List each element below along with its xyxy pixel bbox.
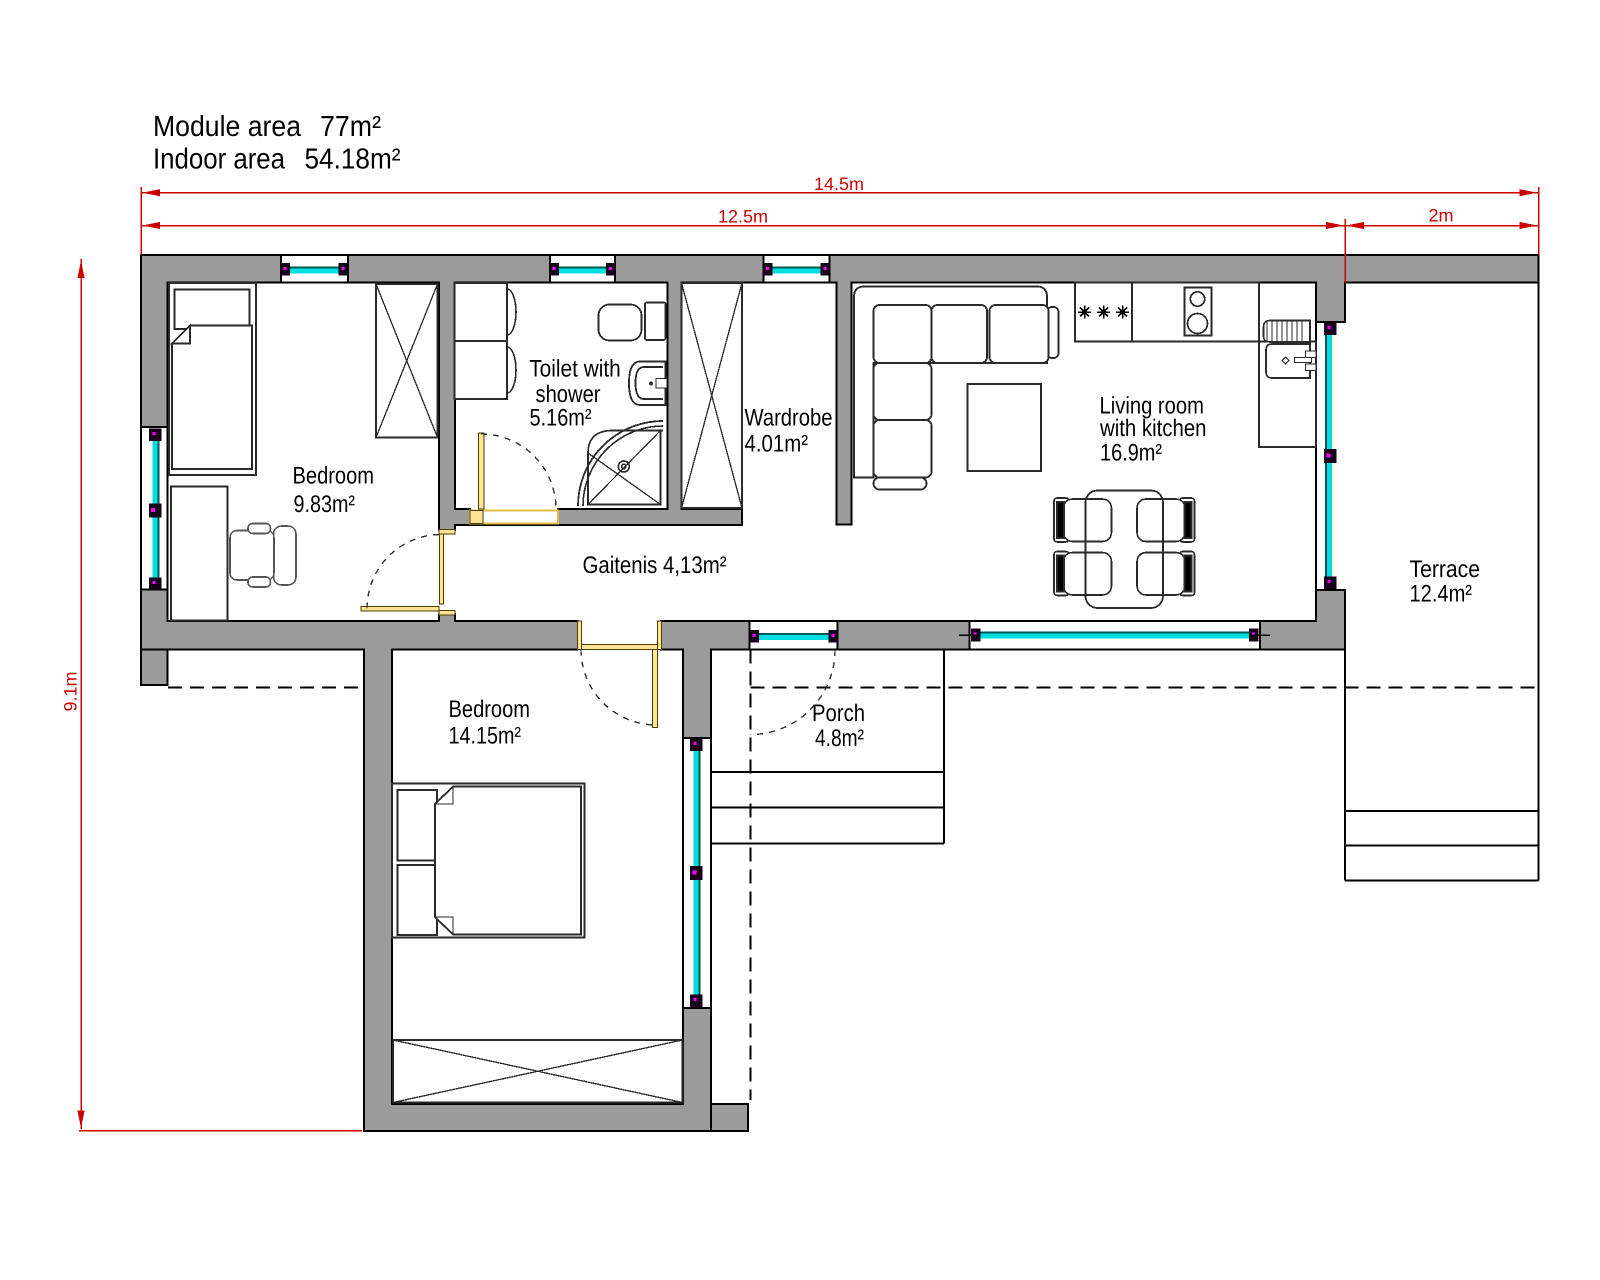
svg-text:Gaitenis 4,13m²: Gaitenis 4,13m² (583, 552, 727, 579)
svg-text:2m: 2m (1428, 206, 1453, 226)
svg-text:14.15m²: 14.15m² (449, 723, 522, 750)
svg-text:Bedroom: Bedroom (449, 696, 531, 723)
svg-text:16.9m²: 16.9m² (1100, 440, 1162, 467)
svg-text:12.5m: 12.5m (718, 207, 768, 227)
svg-text:9.1m: 9.1m (61, 671, 81, 711)
svg-text:12.4m²: 12.4m² (1410, 581, 1473, 608)
svg-text:54.18m²: 54.18m² (305, 144, 401, 176)
svg-text:14.5m: 14.5m (814, 174, 864, 194)
svg-text:Terrace: Terrace (1410, 556, 1481, 583)
svg-text:with kitchen: with kitchen (1099, 415, 1206, 442)
svg-text:4.01m²: 4.01m² (745, 431, 809, 458)
svg-text:Bedroom: Bedroom (293, 463, 375, 490)
svg-text:Wardrobe: Wardrobe (745, 405, 833, 432)
svg-text:Toilet with: Toilet with (529, 356, 621, 383)
svg-text:77m²: 77m² (320, 111, 381, 143)
svg-text:Module area: Module area (153, 111, 302, 143)
svg-text:5.16m²: 5.16m² (530, 405, 592, 432)
svg-text:9.83m²: 9.83m² (294, 491, 356, 518)
svg-text:Indoor area: Indoor area (153, 144, 286, 176)
svg-text:Porch: Porch (812, 700, 865, 727)
svg-text:4.8m²: 4.8m² (815, 725, 864, 752)
